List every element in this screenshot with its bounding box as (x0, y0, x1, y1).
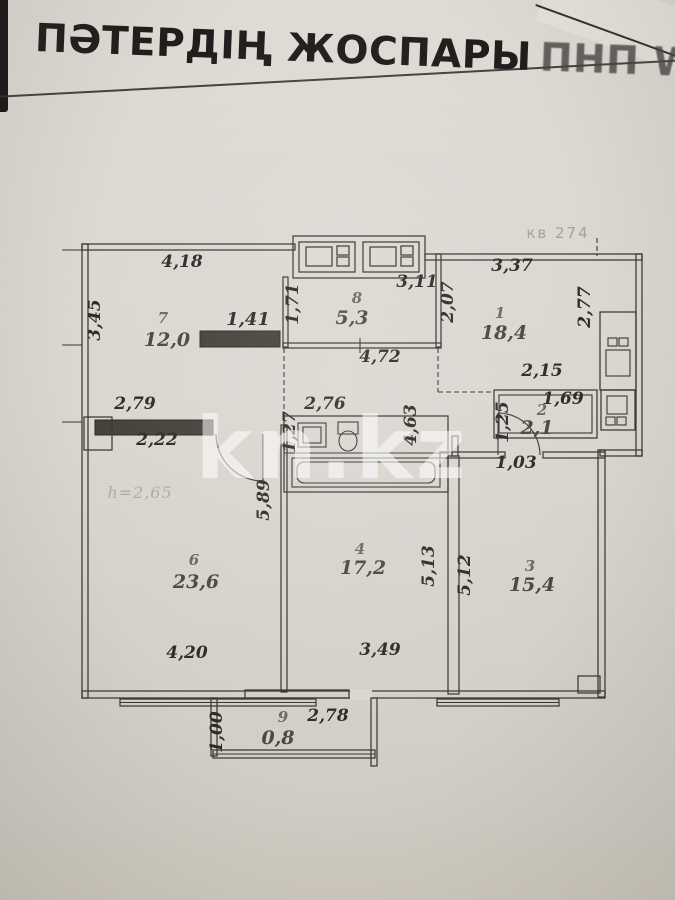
room-number-label: 3 (525, 557, 535, 575)
window-pane (370, 247, 396, 266)
wall-segment (636, 254, 642, 456)
dimension-label: 1,69 (542, 389, 584, 409)
dimension-label: 5,12 (455, 554, 475, 596)
dimension-label: 1,71 (283, 283, 303, 324)
fixture-symbol (617, 417, 626, 425)
room-labels-layer: 712,085,3118,422,1623,6417,2315,490,8 (144, 289, 555, 749)
scanned-floor-plan-page: ПӘТЕРДІҢ ЖОСПАРЫ ПНП W ЕӘV АЙ (0, 0, 675, 900)
room-number-label: 6 (189, 551, 200, 569)
dimension-label: 2,78 (306, 706, 349, 726)
floor-plan-svg: 712,085,3118,422,1623,6417,2315,490,8 4,… (0, 0, 675, 900)
dimension-label: 1,00 (207, 711, 227, 753)
wall-segment (371, 698, 377, 766)
dimension-label: 3,37 (491, 256, 533, 276)
wall-segment (598, 450, 605, 697)
window-vent (337, 246, 349, 255)
solid-wall-segment (200, 331, 280, 347)
room-area-label: 0,8 (261, 727, 294, 749)
dimension-label: 2,79 (113, 394, 156, 414)
dimension-label: 3,49 (359, 640, 401, 660)
room-area-label: 15,4 (509, 574, 555, 596)
window-vent (401, 246, 413, 255)
room-number-label: 7 (158, 309, 169, 327)
room-number-label: 4 (355, 540, 365, 558)
window-vent (401, 257, 413, 266)
dimension-label: 5,13 (419, 545, 439, 587)
room-number-label: 8 (352, 289, 363, 307)
fixture-symbol (606, 417, 615, 425)
wall-segment (543, 452, 605, 458)
room-area-label: 12,0 (144, 329, 190, 351)
watermark: kn.kz (195, 399, 468, 499)
fixture-symbol (619, 338, 628, 346)
room-area-label: 23,6 (172, 571, 219, 593)
fixture-cabinet (600, 312, 636, 390)
door-opening (350, 689, 372, 700)
dimension-label: 2,77 (575, 286, 595, 329)
room-number-label: 1 (495, 304, 505, 322)
dimension-label: 4,18 (161, 252, 203, 272)
ceiling-height-note: h=2,65 (107, 483, 172, 502)
dimension-label: 4,20 (166, 643, 208, 663)
dimension-label: 1,25 (493, 401, 513, 442)
dimension-label: 2,15 (520, 361, 562, 381)
dimension-label: 2,22 (135, 430, 178, 450)
room-area-label: 5,3 (335, 307, 368, 329)
utility-fixtures (600, 312, 636, 430)
dimension-label: 1,41 (226, 309, 270, 330)
room-area-label: 18,4 (481, 322, 527, 344)
window-vent (337, 257, 349, 266)
window-pane (306, 247, 332, 266)
fixture-symbol (608, 338, 617, 346)
fixture-symbol (607, 396, 627, 414)
room-area-label: 2,1 (519, 417, 553, 439)
dimension-label: 3,45 (85, 299, 105, 340)
dimension-label: 4,72 (359, 347, 401, 367)
dimension-label: 3,11 (396, 272, 437, 292)
dimension-label: 1,03 (495, 453, 537, 473)
apartment-number-note: кв 274 (526, 224, 589, 242)
dimension-label: 2,07 (438, 281, 458, 324)
room-area-label: 17,2 (340, 557, 386, 579)
wall-segment (82, 244, 295, 250)
room-number-label: 9 (278, 708, 289, 726)
wall-segment (82, 691, 605, 698)
fixture-symbol (606, 350, 630, 376)
wall-segment (425, 254, 642, 260)
